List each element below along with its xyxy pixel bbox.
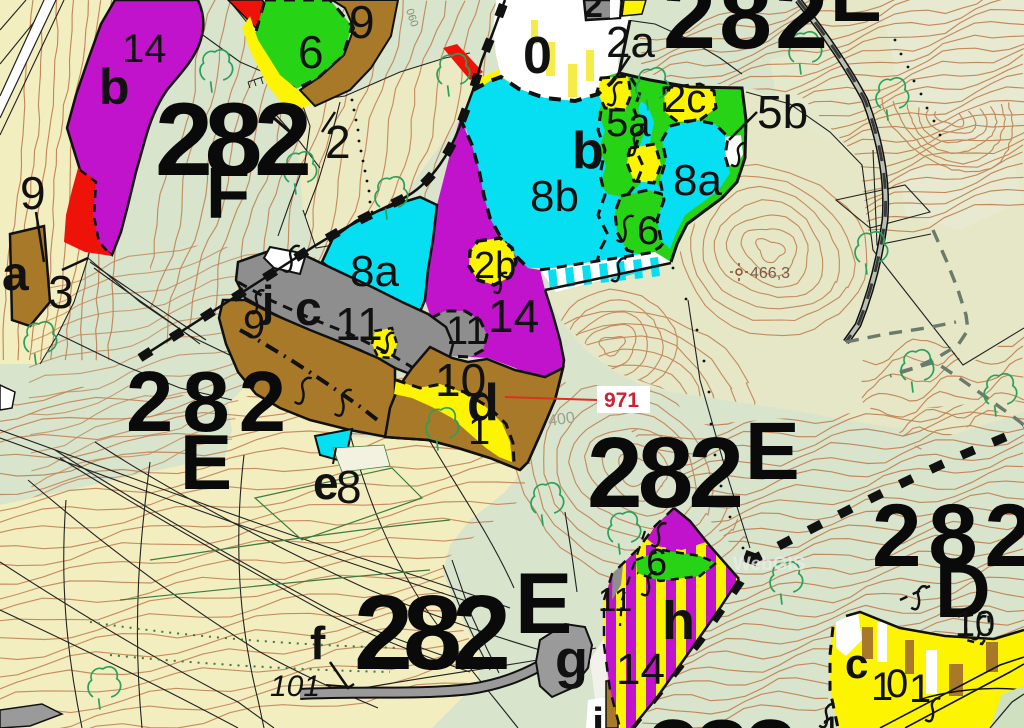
svg-text:101: 101 <box>270 670 320 703</box>
svg-text:282: 282 <box>646 699 798 728</box>
svg-text:1: 1 <box>468 409 490 453</box>
svg-text:E: E <box>830 0 882 38</box>
svg-text:9: 9 <box>243 303 265 347</box>
svg-text:282: 282 <box>663 0 828 69</box>
svg-text:h: h <box>662 591 695 651</box>
svg-text:E: E <box>180 418 232 506</box>
svg-text:8b: 8b <box>530 172 579 221</box>
svg-text:6: 6 <box>298 26 324 78</box>
svg-text:c: c <box>845 640 868 687</box>
svg-text:466,3: 466,3 <box>750 265 790 282</box>
svg-text:2c: 2c <box>664 77 706 121</box>
svg-text:WebGIS: WebGIS <box>733 554 806 575</box>
svg-text:0: 0 <box>523 27 552 85</box>
svg-text:971: 971 <box>604 389 639 412</box>
svg-text:a: a <box>2 248 29 301</box>
svg-text:E: E <box>745 406 800 497</box>
svg-text:2b: 2b <box>474 245 516 287</box>
svg-text:10: 10 <box>955 603 995 644</box>
svg-text:14: 14 <box>488 290 539 342</box>
svg-text:2: 2 <box>325 116 351 168</box>
svg-text:14: 14 <box>616 645 665 694</box>
svg-text:b: b <box>99 59 130 115</box>
svg-text:282: 282 <box>354 574 511 692</box>
svg-text:6: 6 <box>637 209 659 253</box>
svg-text:2a: 2a <box>606 18 655 67</box>
svg-text:282: 282 <box>587 417 744 529</box>
svg-text:9: 9 <box>20 167 46 219</box>
svg-text:9: 9 <box>349 0 375 48</box>
svg-text:0: 0 <box>886 662 908 706</box>
svg-text:F: F <box>206 154 250 234</box>
svg-text:11: 11 <box>335 298 383 350</box>
svg-text:6: 6 <box>646 542 667 584</box>
svg-text:8a: 8a <box>350 247 399 296</box>
svg-text:c: c <box>295 283 322 336</box>
svg-text:1: 1 <box>909 667 931 711</box>
svg-text:11: 11 <box>446 309 488 353</box>
svg-text:3: 3 <box>48 266 74 318</box>
svg-text:8: 8 <box>336 461 362 513</box>
svg-text:2: 2 <box>584 0 603 25</box>
svg-text:5b: 5b <box>757 86 808 138</box>
svg-text:j: j <box>591 699 604 728</box>
svg-text:8a: 8a <box>673 156 722 205</box>
svg-text:1: 1 <box>820 709 842 728</box>
svg-text:11: 11 <box>598 581 632 618</box>
svg-text:f: f <box>310 617 326 669</box>
svg-text:g: g <box>555 630 588 690</box>
svg-text:e: e <box>313 457 339 509</box>
svg-text:5a: 5a <box>606 101 651 145</box>
